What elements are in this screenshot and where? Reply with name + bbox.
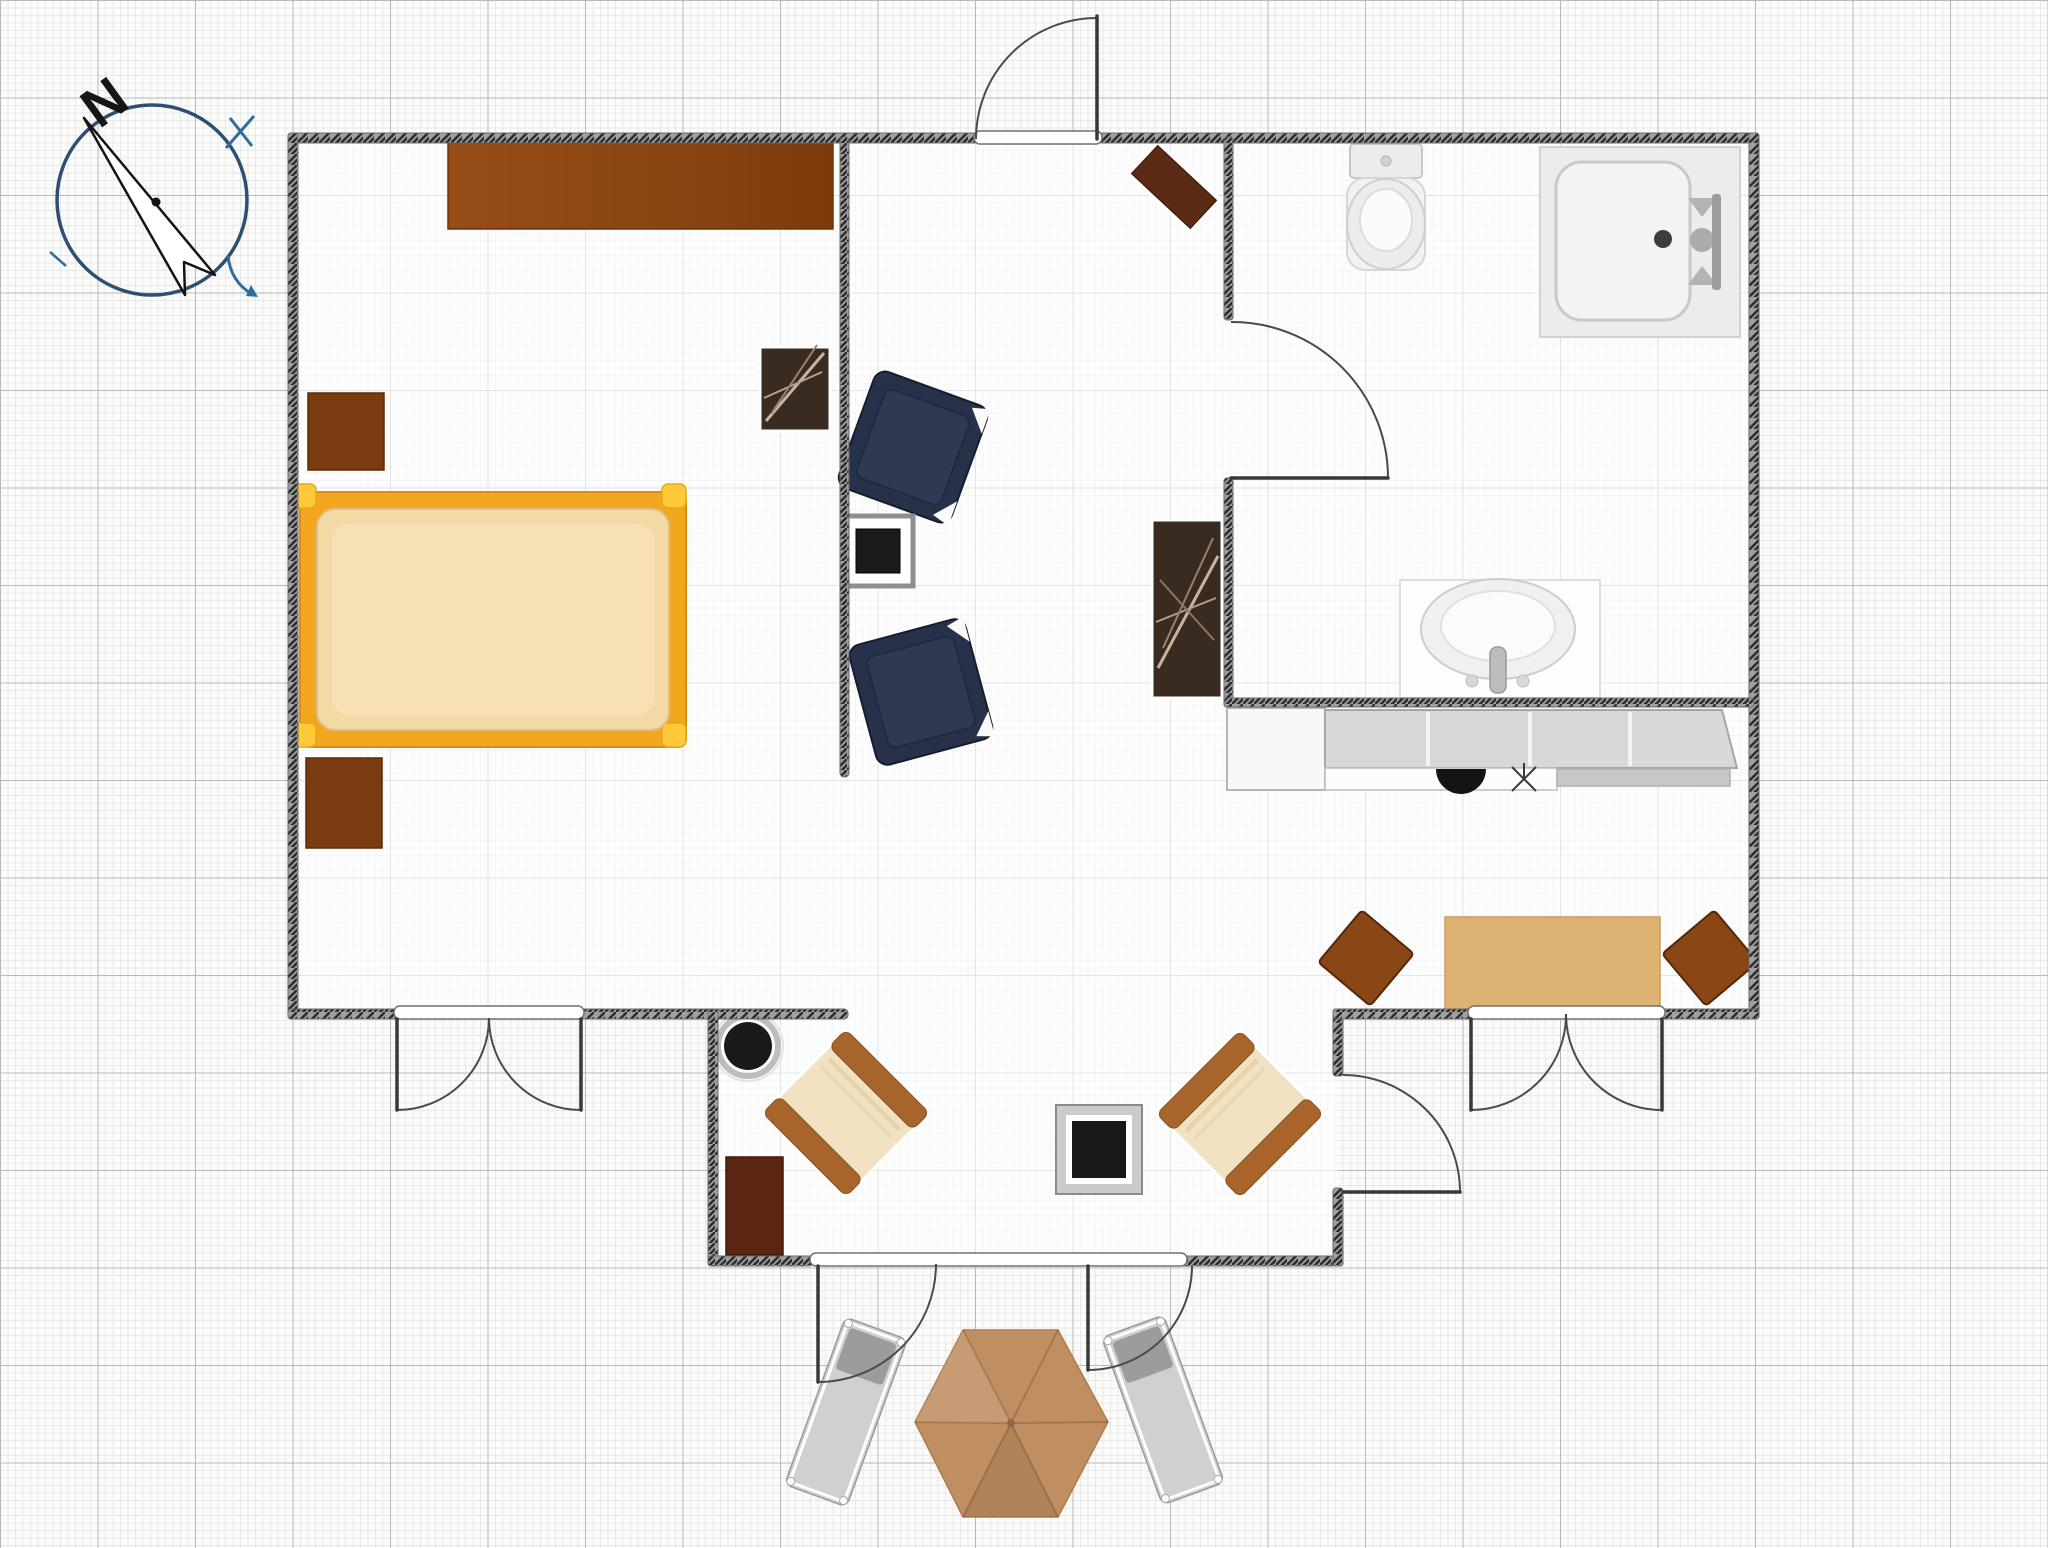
wall-top-left[interactable] [288, 133, 978, 143]
toilet-flush-button [1381, 156, 1391, 166]
table-top [856, 529, 900, 573]
wall-art-living[interactable] [1152, 520, 1222, 698]
wall-bathroom-left-lower[interactable] [1224, 478, 1233, 707]
nightstand-top[interactable] [308, 393, 384, 470]
shower-rail [1712, 194, 1721, 290]
sink-tap [1517, 675, 1529, 687]
parasol-pole [1007, 1419, 1015, 1427]
compass-center-dot [152, 198, 161, 207]
sill-patio-door[interactable] [810, 1253, 1187, 1266]
sink-tap [1466, 675, 1478, 687]
bathroom-sink[interactable] [1400, 579, 1600, 698]
wall-top-right[interactable] [1099, 133, 1759, 143]
toilet[interactable] [1347, 144, 1425, 270]
bedroom-dresser[interactable] [448, 143, 833, 229]
wall-left[interactable] [288, 133, 298, 1019]
shower[interactable] [1540, 147, 1740, 337]
parasol-seam [1011, 1422, 1108, 1423]
wall-lounge-bottom-right[interactable] [1181, 1256, 1343, 1266]
compass-tick-sw [50, 252, 66, 266]
wall-art-bedroom[interactable] [760, 345, 830, 431]
kitchen-fridge [1227, 708, 1325, 790]
wall-dining-south-left[interactable] [1333, 1009, 1472, 1019]
door-swing-arc [1343, 1075, 1460, 1192]
sink-faucet [1490, 647, 1506, 693]
chaise-lounge-right[interactable] [1102, 1315, 1225, 1505]
nightstand-bottom[interactable] [306, 758, 382, 848]
dining-french-door-right[interactable] [1566, 1014, 1662, 1110]
door-swing-arc [976, 18, 1097, 139]
wall-bathroom-bottom[interactable] [1224, 698, 1754, 707]
wall-bathroom-left-upper[interactable] [1224, 137, 1233, 320]
bedroom-french-door-left[interactable] [397, 1018, 489, 1110]
compass-north-label: N [69, 65, 139, 140]
kitchen-ledge [1557, 769, 1730, 786]
door-swing-arc [1471, 1015, 1566, 1110]
wall-lounge-left[interactable] [708, 1009, 718, 1266]
side-table-black[interactable] [843, 516, 913, 586]
wall-dining-south-right[interactable] [1661, 1009, 1759, 1019]
bedroom-french-door-right[interactable] [489, 1018, 581, 1110]
shower-fixture-knob [1690, 228, 1714, 252]
chaise-lounge-left[interactable] [785, 1317, 908, 1507]
wall-right[interactable] [1749, 133, 1759, 1019]
shower-drain [1654, 230, 1672, 248]
compass-needle[interactable] [84, 118, 215, 295]
coffee-table-top [1072, 1121, 1126, 1178]
bed-sheet [332, 524, 654, 715]
wall-bedroom-bottom-left[interactable] [288, 1009, 398, 1019]
kitchen-counter[interactable] [1227, 708, 1737, 794]
dining-french-door-left[interactable] [1471, 1015, 1566, 1110]
pot-body [724, 1022, 772, 1070]
bed-knob [662, 484, 686, 508]
floor-plan-scene: N [0, 0, 2048, 1548]
wall-lounge-right-lower[interactable] [1333, 1188, 1343, 1266]
sill-bedroom-french-door[interactable] [394, 1006, 584, 1019]
lounge-side-door[interactable] [1343, 1075, 1460, 1192]
dining-table[interactable] [1445, 917, 1660, 1010]
wall-lounge-bottom-left[interactable] [708, 1256, 812, 1266]
double-bed[interactable] [292, 484, 686, 747]
door-swing-arc [1566, 1014, 1662, 1110]
lounge-cabinet[interactable] [726, 1157, 783, 1255]
toilet-bowl-inner [1360, 189, 1412, 251]
coffee-table[interactable] [1056, 1105, 1142, 1194]
floor-plan-canvas: N [0, 0, 2048, 1548]
door-swing-arc [397, 1018, 489, 1110]
wall-bedroom-divider[interactable] [840, 137, 849, 777]
patio-parasol[interactable] [915, 1330, 1108, 1517]
bed-knob [662, 723, 686, 747]
sill-entry-door[interactable] [974, 131, 1102, 144]
door-swing-arc [489, 1018, 581, 1110]
entry-door[interactable] [976, 16, 1097, 139]
compass-tick-se [228, 256, 252, 294]
compass-layer: N [50, 65, 258, 297]
